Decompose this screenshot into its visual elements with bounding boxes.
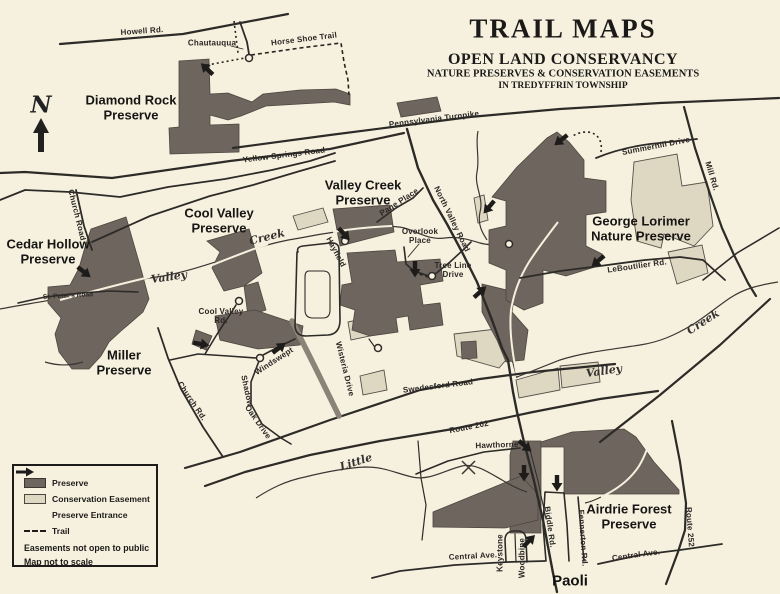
trail-map-page: TRAIL MAPS OPEN LAND CONSERVANCY NATURE … bbox=[0, 0, 780, 594]
compass-north-label: N bbox=[30, 92, 51, 119]
valley-creek-east bbox=[517, 282, 778, 377]
keystone-woodbine-inner bbox=[515, 534, 516, 562]
connector-line bbox=[170, 354, 256, 360]
legend-label: Preserve Entrance bbox=[52, 510, 127, 520]
preserve-label-cool-valley: Cool Valley Preserve bbox=[171, 206, 267, 237]
easement-shape bbox=[360, 370, 387, 395]
pennsylvania-turnpike-line bbox=[233, 98, 779, 148]
north-arrow-icon bbox=[33, 118, 49, 152]
preserve-swatch-icon bbox=[24, 478, 46, 488]
legend-item-entrance: Preserve Entrance bbox=[24, 507, 150, 523]
trail-dash-icon bbox=[24, 530, 46, 532]
preserve-label-cedar-hollow: Cedar Hollow Preserve bbox=[0, 237, 100, 268]
easement-shape bbox=[668, 245, 708, 284]
legend-note-easements: Easements not open to public bbox=[24, 543, 150, 553]
cross-road-line bbox=[703, 228, 779, 280]
legend-label: Conservation Easement bbox=[52, 494, 150, 504]
entrance-arrow-icon bbox=[552, 475, 563, 492]
diamond-rock-shape bbox=[169, 59, 350, 154]
easement-stem bbox=[369, 339, 374, 346]
road-label-cool-valley-rd: Cool Valley Rd. bbox=[198, 307, 244, 325]
valley-diagonal-line bbox=[600, 299, 770, 442]
legend-item-easement: Conservation Easement bbox=[24, 491, 150, 507]
hawthorne-line bbox=[416, 448, 520, 474]
easement-shape bbox=[293, 208, 328, 230]
legend: Preserve Conservation Easement Preserve … bbox=[12, 464, 158, 567]
chautauqua-line bbox=[240, 22, 249, 54]
minor-road-line bbox=[418, 441, 426, 540]
airdrie-shape bbox=[433, 476, 538, 528]
organization-title: OPEN LAND CONSERVANCY bbox=[448, 51, 678, 69]
lorimer-trail-arc bbox=[571, 132, 601, 152]
easement-inset-dark bbox=[461, 341, 477, 359]
road-label-woodbine: Woodbine bbox=[518, 538, 527, 578]
legend-label: Trail bbox=[52, 526, 70, 536]
hayfield-inner-line bbox=[305, 271, 330, 318]
legend-note-scale: Map not to scale bbox=[24, 557, 150, 567]
howell-rd-line bbox=[60, 14, 288, 44]
subtitle-line1: NATURE PRESERVES & CONSERVATION EASEMENT… bbox=[427, 69, 699, 80]
secondary-road-line bbox=[0, 153, 335, 200]
road-label-chautauqua: Chautauqua bbox=[188, 39, 236, 48]
legend-item-trail: Trail bbox=[24, 523, 150, 539]
preserve-label-diamond-rock: Diamond Rock Preserve bbox=[78, 93, 184, 124]
crossing-mark bbox=[462, 461, 475, 474]
upper-creek bbox=[476, 131, 487, 240]
road-label-overlook-place: Overlook Place bbox=[391, 227, 449, 245]
road-label-keystone: Keystone bbox=[496, 534, 505, 572]
legend-label: Preserve bbox=[52, 478, 88, 488]
preserve-label-airdrie-forest: Airdrie Forest Preserve bbox=[571, 502, 687, 533]
road-label-hawthorne: Hawthorne bbox=[475, 440, 518, 451]
preserve-label-miller: Miller Preserve bbox=[89, 348, 159, 379]
horse-shoe-trail-line bbox=[251, 43, 349, 95]
legend-item-preserve: Preserve bbox=[24, 475, 150, 491]
place-label-paoli: Paoli bbox=[552, 573, 588, 590]
road-label-tree-line-drive: Tree Line Drive bbox=[425, 261, 481, 279]
entrance-arrow-icon bbox=[24, 509, 46, 521]
overlook-pointer bbox=[408, 244, 419, 257]
easement-swatch-icon bbox=[24, 494, 46, 504]
preserve-label-george-lorimer: George Lorimer Nature Preserve bbox=[575, 214, 707, 245]
subtitle-line2: IN TREDYFFRIN TOWNSHIP bbox=[498, 81, 627, 91]
trail-segment bbox=[234, 21, 238, 53]
page-title: TRAIL MAPS bbox=[469, 14, 656, 45]
